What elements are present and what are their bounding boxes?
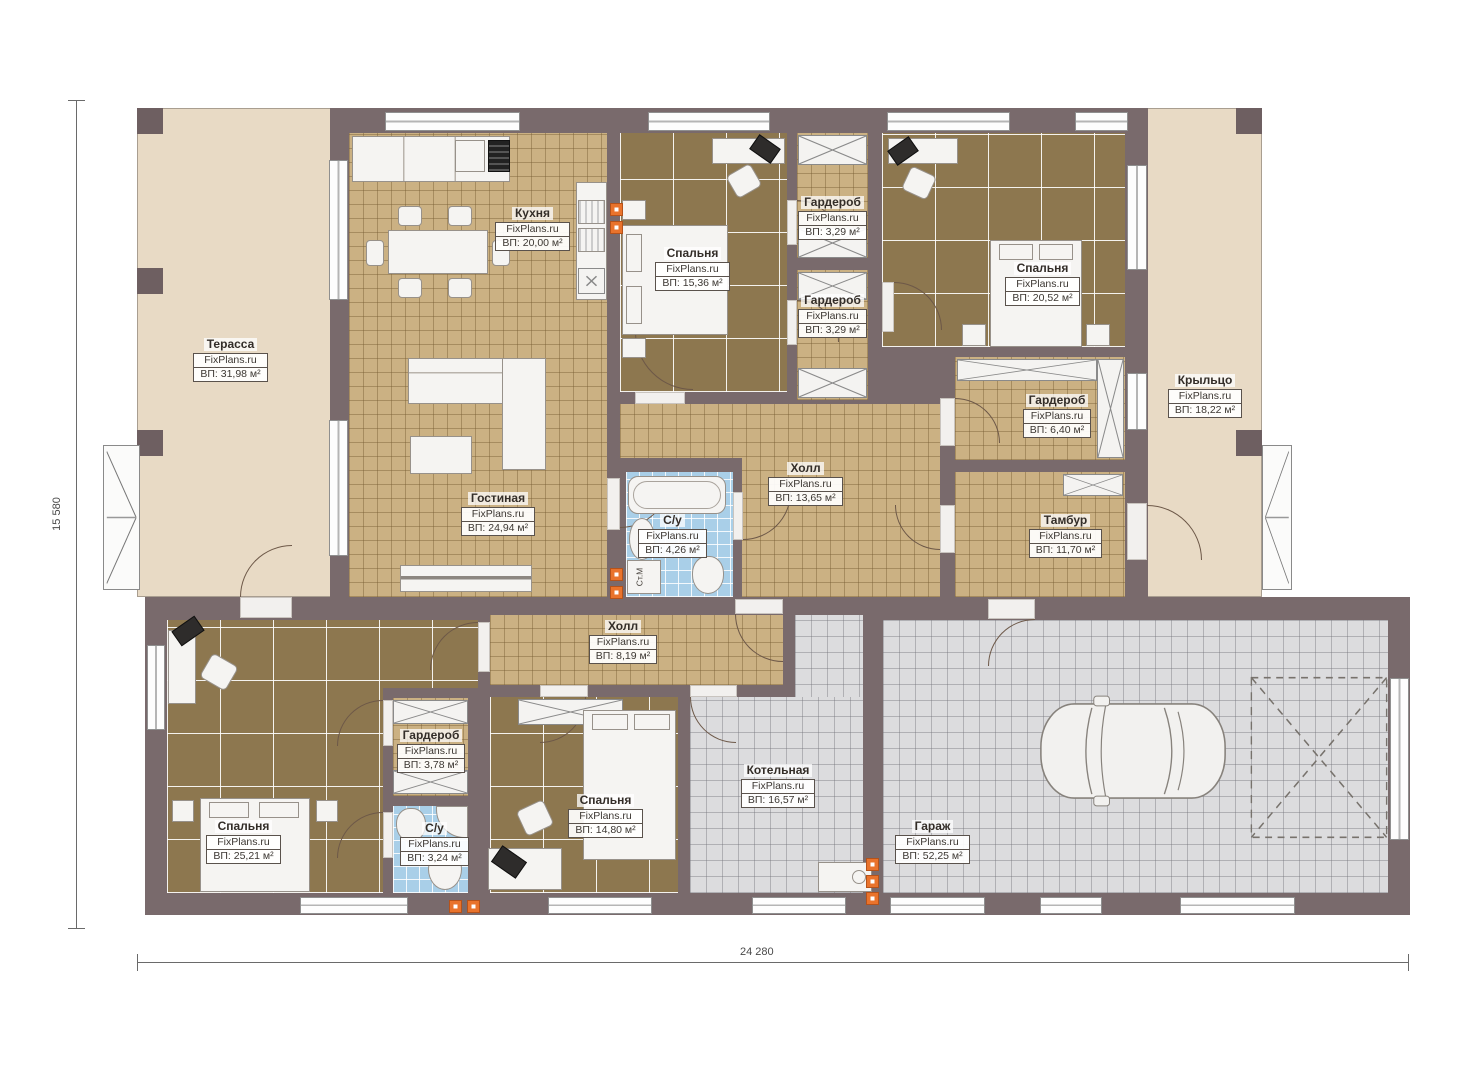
room-name: Гардероб [1026,394,1089,407]
floor-plan: Ст.М Терасса FixPlans.ruВП: 31,98 м² Кух… [0,0,1474,1080]
dining-table [388,230,488,274]
room-area: ВП: 3,29 м² [799,225,865,239]
pillow [1039,244,1073,260]
door [735,599,783,614]
window [385,112,520,131]
nightstand [622,338,646,358]
pillow [209,802,249,818]
brand: FixPlans.ru [462,508,534,521]
toilet [692,556,724,594]
closet [393,770,468,794]
vent-marker [866,875,879,888]
room-area: ВП: 13,65 м² [769,491,841,505]
room-area: ВП: 20,52 м² [1006,291,1078,305]
brand: FixPlans.ru [799,212,865,225]
boiler-dial [852,870,866,884]
room-label-garage: Гараж FixPlans.ruВП: 52,25 м² [885,818,980,864]
room-label-wardrobe4: Гардероб FixPlans.ruВП: 3,78 м² [386,727,476,773]
door [690,685,737,697]
brand: FixPlans.ru [769,478,841,491]
room-area: ВП: 15,36 м² [656,276,728,290]
closet [393,700,468,724]
chair [448,206,472,226]
window [300,897,408,914]
room-area: ВП: 11,70 м² [1030,543,1102,557]
bathtub-inner [633,481,721,509]
room-area: ВП: 20,00 м² [496,236,568,250]
room-name: Гараж [912,820,954,833]
window [887,112,1010,131]
chair [398,206,422,226]
coffee-table [410,436,472,474]
room-label-wardrobe3: Гардероб FixPlans.ruВП: 6,40 м² [1012,392,1102,438]
vent-marker [467,900,480,913]
nightstand [962,324,986,346]
room-name: Холл [605,620,641,633]
room-name: Спальня [1014,262,1072,275]
brand: FixPlans.ru [742,780,814,793]
window [1127,373,1147,430]
room-area: ВП: 16,57 м² [742,793,814,807]
room-area: ВП: 25,21 м² [207,849,279,863]
room-label-vestibule: Тамбур FixPlans.ruВП: 11,70 м² [1018,512,1113,558]
door [540,685,588,697]
vent-marker [610,203,623,216]
brand: FixPlans.ru [569,810,641,823]
closet [798,135,867,165]
brand: FixPlans.ru [401,838,467,851]
brand: FixPlans.ru [398,745,464,758]
room-name: Спальня [577,794,635,807]
room-name: Гардероб [801,196,864,209]
dimension-tick [68,100,85,101]
window [1075,112,1128,131]
terrace-column [137,268,163,294]
vent-marker [866,892,879,905]
porch-steps [1262,445,1292,590]
window [147,645,165,730]
brand: FixPlans.ru [496,223,568,236]
window [1040,897,1102,914]
room-label-bedroom2: Спальня FixPlans.ruВП: 20,52 м² [995,260,1090,306]
room-label-bath2: С/у FixPlans.ruВП: 3,24 м² [392,820,477,866]
room-label-porch: Крыльцо FixPlans.ruВП: 18,22 м² [1155,372,1255,418]
room-name: Крыльцо [1175,374,1236,387]
room-label-bath1: С/у FixPlans.ruВП: 4,26 м² [630,512,715,558]
room-label-living: Гостиная FixPlans.ruВП: 24,94 м² [448,490,548,536]
door [940,505,955,553]
window [752,897,846,914]
door [988,599,1035,619]
room-area: ВП: 14,80 м² [569,823,641,837]
pillow [999,244,1033,260]
room-label-bedroom3: Спальня FixPlans.ruВП: 25,21 м² [196,818,291,864]
vent-marker [610,568,623,581]
brand: FixPlans.ru [1024,410,1090,423]
closet [1063,474,1123,496]
vent-marker [449,900,462,913]
dimension-tick [1408,954,1409,971]
window [329,420,348,556]
door [607,478,620,530]
pillow [634,714,670,730]
brand: FixPlans.ru [656,263,728,276]
door [478,622,490,672]
window [648,112,770,131]
bathtub [628,476,726,514]
room-name: Кухня [512,207,553,220]
room-area: ВП: 18,22 м² [1169,403,1241,417]
porch-column [1236,430,1262,456]
terrace-steps [103,445,140,590]
brand: FixPlans.ru [1030,530,1102,543]
window [890,897,985,914]
room-label-hall1: Холл FixPlans.ruВП: 13,65 м² [758,460,853,506]
room-label-kitchen: Кухня FixPlans.ruВП: 20,00 м² [485,205,580,251]
door [882,282,894,332]
vent-marker [610,221,623,234]
room-name: Гостиная [468,492,528,505]
room-label-boiler: Котельная FixPlans.ruВП: 16,57 м² [728,762,828,808]
washing-machine-label: Ст.М [634,568,644,587]
room-name: Котельная [744,764,813,777]
pillow [592,714,628,730]
brand: FixPlans.ru [1169,390,1241,403]
room-area: ВП: 31,98 м² [194,367,266,381]
door [240,597,292,618]
room-name: Холл [787,462,823,475]
dimension-line-left [76,100,77,928]
sofa-chaise [502,358,546,470]
kitchen-counter [352,136,510,182]
dimension-label-bottom: 24 280 [740,946,774,958]
terrace-column [137,108,163,134]
closet [957,359,1097,381]
pillow [626,286,642,324]
kitchen-sink-unit [578,268,605,294]
pillow [626,234,642,272]
terrace-column [137,430,163,456]
garage-parking-zone [1250,676,1388,839]
room-area: ВП: 4,26 м² [639,543,705,557]
brand: FixPlans.ru [194,354,266,367]
kitchen-appliance [578,200,605,224]
brand: FixPlans.ru [639,530,705,543]
brand: FixPlans.ru [590,636,656,649]
room-label-bedroom1: Спальня FixPlans.ruВП: 15,36 м² [645,245,740,291]
room-name: Терасса [204,338,258,351]
room-label-hall2: Холл FixPlans.ruВП: 8,19 м² [578,618,668,664]
nightstand [316,800,338,822]
chair [448,278,472,298]
dimension-tick [137,954,138,971]
room-name: Гардероб [801,294,864,307]
kitchen-appliance [578,228,605,252]
room-area: ВП: 3,78 м² [398,758,464,772]
room-label-wardrobe1: Гардероб FixPlans.ruВП: 3,29 м² [790,194,875,240]
brand: FixPlans.ru [1006,278,1078,291]
window [548,897,652,914]
porch-column [1236,108,1262,134]
vent-marker [866,858,879,871]
room-name: Тамбур [1041,514,1091,527]
window [329,160,348,300]
brand: FixPlans.ru [896,836,968,849]
room-area: ВП: 52,25 м² [896,849,968,863]
room-label-terrace: Терасса FixPlans.ruВП: 31,98 м² [183,336,278,382]
garage-gate [1390,678,1409,840]
room-name: С/у [660,514,685,527]
dimension-tick [68,928,85,929]
kitchen-stove [488,140,510,172]
nightstand [1086,324,1110,346]
room-name: Гардероб [400,729,463,742]
brand: FixPlans.ru [207,836,279,849]
nightstand [172,800,194,822]
room-name: Спальня [215,820,273,833]
room-area: ВП: 6,40 м² [1024,423,1090,437]
closet [798,368,867,398]
vent-marker [610,586,623,599]
door [940,398,955,446]
window [1127,165,1147,270]
room-area: ВП: 3,24 м² [401,851,467,865]
room-area: ВП: 3,29 м² [799,323,865,337]
door [635,392,685,404]
kitchen-sink [455,140,485,172]
room-area: ВП: 8,19 м² [590,649,656,663]
tv-bench [400,565,532,592]
room-name: С/у [422,822,447,835]
door [733,492,743,540]
dimension-line-bottom [137,962,1408,963]
dimension-label-left: 15 580 [51,497,63,531]
room-name: Спальня [664,247,722,260]
window [1180,897,1295,914]
nightstand [622,200,646,220]
chair [366,240,384,266]
brand: FixPlans.ru [799,310,865,323]
entry-door [1127,503,1147,560]
pillow [259,802,299,818]
room-area: ВП: 24,94 м² [462,521,534,535]
room-label-wardrobe2: Гардероб FixPlans.ruВП: 3,29 м² [790,292,875,338]
car [1035,692,1231,810]
chair [398,278,422,298]
room-label-bedroom4: Спальня FixPlans.ruВП: 14,80 м² [558,792,653,838]
